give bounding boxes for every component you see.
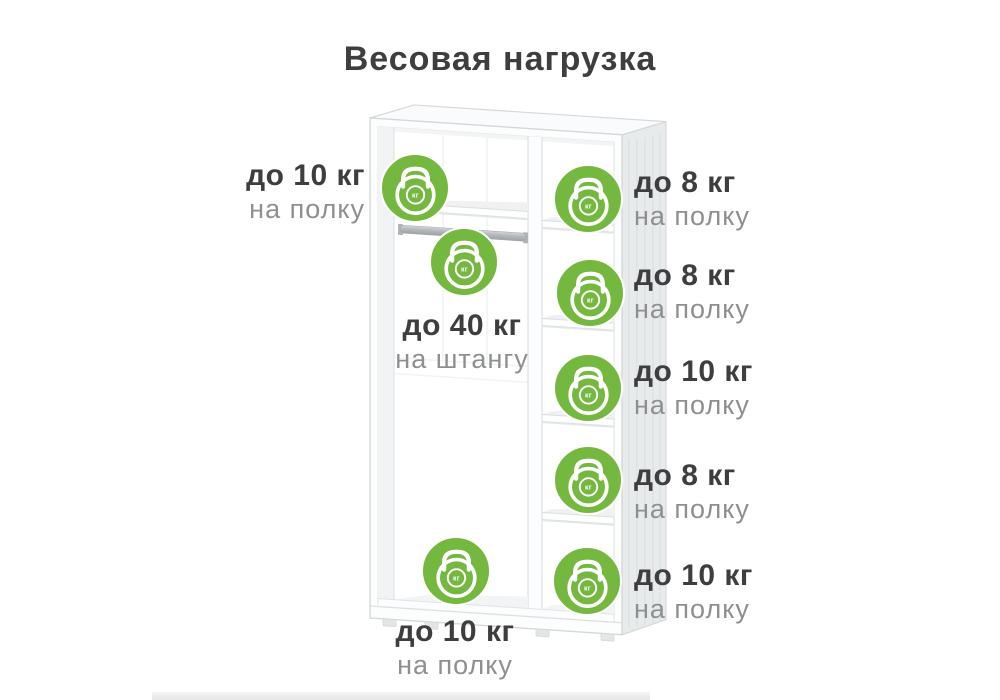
annotation-top-shelf-left: до 10 кг на полку — [150, 159, 365, 224]
annotation-hanging-rod: до 40 кг на штангу — [362, 309, 562, 374]
svg-text:кг: кг — [460, 266, 467, 273]
kettlebell-icon: кг — [566, 266, 615, 321]
load-target: на полку — [150, 194, 365, 224]
annotation-right-shelf-3: до 10 кг на полку — [634, 355, 809, 420]
svg-text:кг: кг — [584, 484, 591, 491]
svg-text:кг: кг — [411, 192, 418, 199]
kettlebell-icon: кг — [432, 544, 481, 599]
load-badge-hanging-rod: кг — [429, 227, 499, 297]
annotation-bottom-shelf: до 10 кг на полку — [352, 615, 558, 680]
load-target: на полку — [634, 494, 809, 524]
load-target: на полку — [352, 650, 558, 680]
load-target: на полку — [634, 594, 809, 624]
svg-text:кг: кг — [452, 575, 459, 582]
kettlebell-icon: кг — [391, 161, 440, 216]
load-limit: до 8 кг — [634, 166, 809, 199]
kettlebell-icon: кг — [564, 172, 613, 227]
load-limit: до 10 кг — [634, 559, 809, 592]
load-target: на полку — [634, 390, 809, 420]
load-target: на полку — [634, 294, 809, 324]
load-limit: до 40 кг — [362, 309, 562, 342]
divider-panel — [528, 136, 542, 617]
load-badge-right-shelf-2: кг — [555, 258, 625, 328]
load-limit: до 10 кг — [150, 159, 365, 192]
svg-text:кг: кг — [584, 392, 591, 399]
load-limit: до 10 кг — [634, 355, 809, 388]
infographic-canvas: Весовая нагрузка — [0, 0, 1000, 700]
annotation-right-shelf-1: до 8 кг на полку — [634, 166, 809, 231]
cropped-element-edge — [152, 692, 650, 700]
load-badge-right-shelf-3: кг — [553, 353, 623, 423]
kettlebell-icon: кг — [564, 453, 613, 508]
svg-text:кг: кг — [583, 585, 590, 592]
annotation-right-shelf-5: до 10 кг на полку — [634, 559, 809, 624]
annotation-right-shelf-4: до 8 кг на полку — [634, 459, 809, 524]
svg-text:кг: кг — [586, 297, 593, 304]
load-badge-bottom-shelf: кг — [421, 536, 491, 606]
load-badge-top-shelf-left: кг — [380, 153, 450, 223]
load-limit: до 8 кг — [634, 459, 809, 492]
kettlebell-icon: кг — [564, 361, 613, 416]
annotation-right-shelf-2: до 8 кг на полку — [634, 259, 809, 324]
load-limit: до 10 кг — [352, 615, 558, 648]
load-badge-right-shelf-1: кг — [553, 164, 623, 234]
svg-text:кг: кг — [584, 203, 591, 210]
load-target: на полку — [634, 201, 809, 231]
load-badge-right-shelf-5: кг — [552, 546, 622, 616]
kettlebell-icon: кг — [440, 235, 489, 290]
load-target: на штангу — [362, 344, 562, 374]
kettlebell-icon: кг — [563, 554, 612, 609]
load-limit: до 8 кг — [634, 259, 809, 292]
load-badge-right-shelf-4: кг — [553, 445, 623, 515]
